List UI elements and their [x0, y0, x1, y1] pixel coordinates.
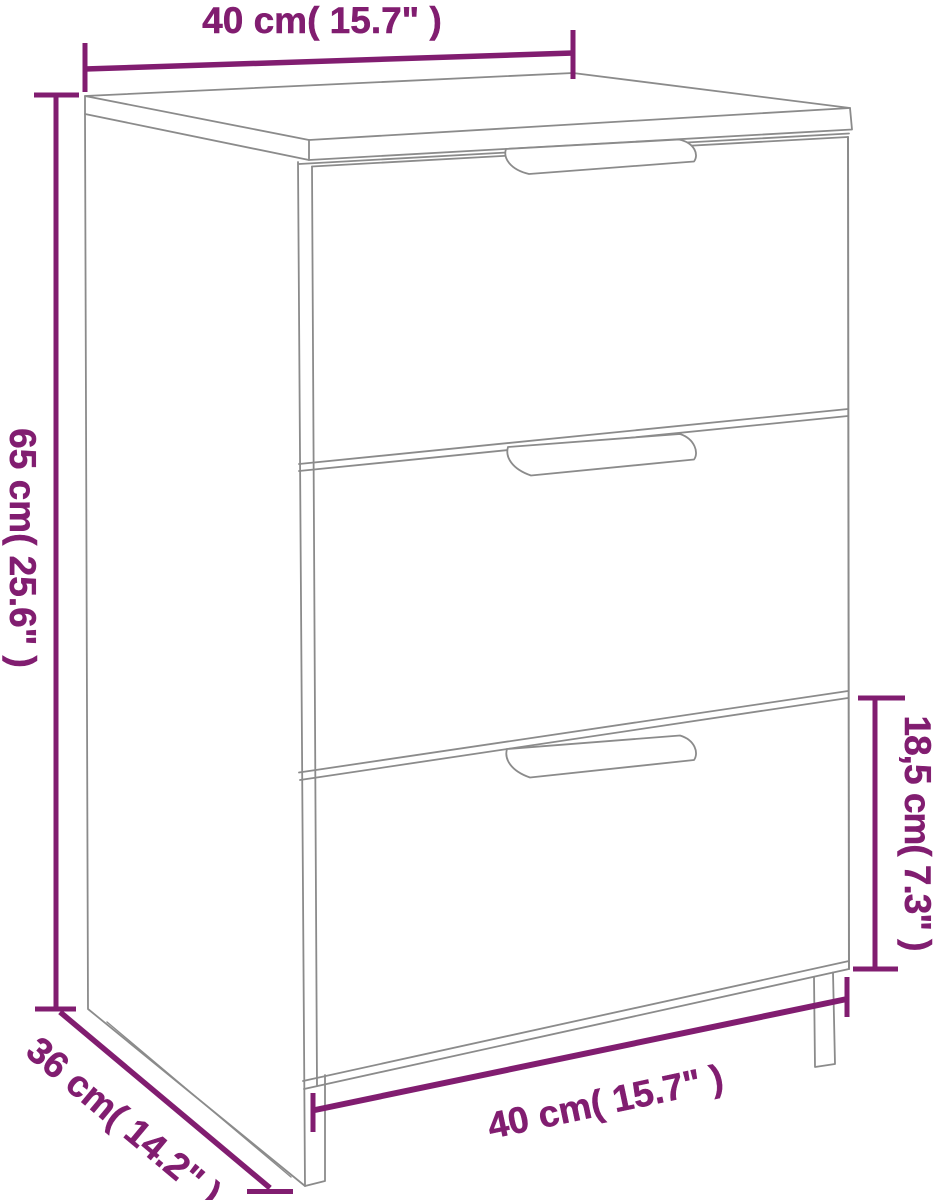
svg-text:18,5 cm( 7.3" ): 18,5 cm( 7.3" ) — [897, 716, 933, 951]
svg-text:40 cm( 15.7" ): 40 cm( 15.7" ) — [484, 1057, 727, 1147]
svg-text:40 cm( 15.7" ): 40 cm( 15.7" ) — [202, 0, 442, 41]
svg-text:65 cm( 25.6" ): 65 cm( 25.6" ) — [2, 428, 43, 668]
svg-text:36 cm( 14.2" ): 36 cm( 14.2" ) — [19, 1029, 229, 1200]
